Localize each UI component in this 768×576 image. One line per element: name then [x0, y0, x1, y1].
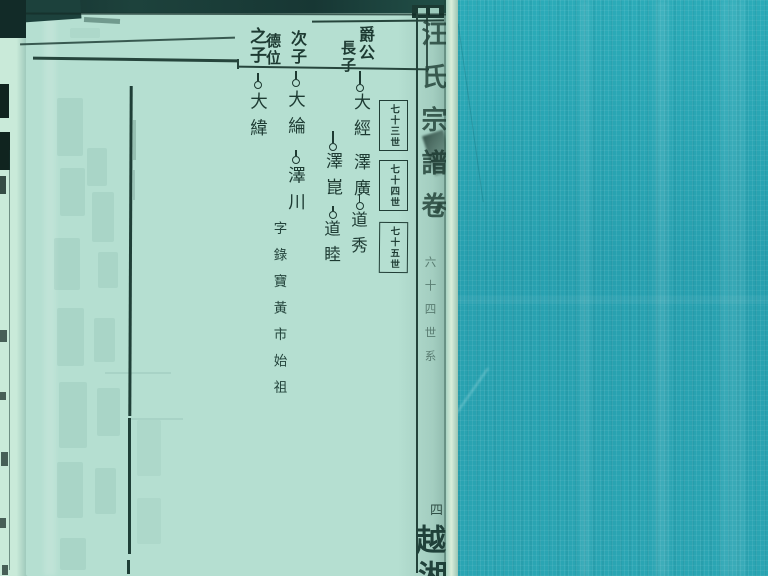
person-da-wei: 大緯 — [248, 92, 266, 145]
fabric-streak — [580, 0, 590, 576]
generation-box-73: 七十三世 — [379, 100, 408, 151]
descent-ring — [292, 79, 300, 87]
ghost-connector-line — [105, 372, 171, 374]
person-dao-xiu: 道秀 — [349, 211, 366, 262]
person-ze-chuan-note: 字錄寶黃市始祖 — [271, 221, 285, 407]
header-label-de-wei: 德位 — [265, 33, 280, 67]
fabric-background — [440, 0, 768, 576]
faint-marginal-marks — [133, 120, 136, 160]
underpage-border-line — [9, 150, 10, 570]
edge-mark — [1, 452, 8, 466]
fabric-streak — [655, 0, 669, 576]
cut-off-glyph-block — [0, 84, 9, 118]
ghost-text-block — [60, 168, 85, 216]
header-label-jue-gong: 爵公 — [357, 26, 373, 62]
descent-ring — [254, 81, 262, 89]
fabric-crease — [458, 18, 524, 202]
chart-vertical-line — [128, 418, 131, 554]
page-edge-line — [444, 0, 446, 576]
edge-mark — [0, 392, 6, 400]
person-da-jing: 大經 — [351, 93, 368, 145]
ghost-text-block — [92, 192, 114, 242]
descent-ring — [329, 143, 337, 151]
generation-box-75: 七十五世 — [379, 222, 408, 273]
descent-line — [332, 131, 334, 143]
page-crease-highlight — [44, 8, 56, 576]
edge-mark — [0, 518, 6, 528]
cut-off-glyph-block — [0, 176, 6, 194]
person-da-lun: 大綸 — [286, 90, 304, 143]
spine-vertical-rule — [416, 13, 418, 573]
ghost-text-block — [57, 308, 84, 366]
descent-line — [257, 73, 259, 81]
spine-small-text: 六十四世系 — [424, 256, 436, 374]
ghost-text-block — [87, 148, 107, 186]
generation-box-74: 七十四世 — [379, 160, 408, 211]
ghost-text-block — [137, 498, 161, 544]
generation-box-73-label: 七十三世 — [389, 104, 399, 148]
descent-line — [295, 71, 297, 79]
spine-bottom-mark: 四 — [428, 503, 441, 516]
person-ze-kun: 澤崑 — [323, 152, 340, 204]
ghost-text-block — [57, 462, 83, 518]
ghost-text-block — [59, 382, 87, 448]
chart-vertical-line-dash — [127, 560, 130, 574]
page-right-edge — [446, 0, 458, 576]
ghost-connector-line — [128, 418, 183, 420]
fabric-streak — [440, 296, 768, 304]
spine-bottom-char-cut: 湘 — [414, 560, 444, 576]
descent-ring — [292, 156, 300, 164]
ghost-text-block — [57, 98, 83, 156]
ghost-text-block — [137, 420, 161, 476]
descent-line — [359, 71, 361, 84]
spine-bottom-char-yue: 越 — [412, 524, 442, 554]
header-label-his-son: 之子 — [247, 27, 264, 65]
descent-ring — [356, 84, 364, 92]
ghost-text-block — [97, 388, 120, 436]
genealogy-page — [26, 8, 450, 576]
fabric-streak — [720, 0, 746, 576]
descent-line — [359, 195, 361, 202]
header-label-second-son: 次子 — [289, 30, 305, 66]
person-ze-chuan: 澤川 — [286, 166, 304, 219]
descent-ring — [329, 211, 337, 219]
photo-of-genealogy-book: 爵公 長子 次子 德位 之子 七十三世 七十四世 七十五世 大經 澤廣 道秀 澤… — [0, 0, 768, 576]
generation-box-74-label: 七十四世 — [389, 164, 399, 208]
ghost-text-block — [70, 28, 100, 38]
ghost-text-block — [95, 468, 116, 514]
edge-mark — [0, 330, 7, 342]
ghost-text-block — [94, 318, 115, 362]
ghost-text-block — [98, 252, 118, 288]
header-label-eldest-son: 長子 — [340, 40, 355, 74]
ghost-text-block — [60, 538, 86, 570]
background-shadow-band — [0, 0, 26, 38]
edge-mark — [2, 565, 8, 575]
faint-marginal-marks — [133, 170, 135, 200]
generation-box-75-label: 七十五世 — [389, 225, 399, 269]
ghost-text-block — [54, 238, 80, 290]
person-dao-mu: 道睦 — [322, 220, 339, 271]
descent-ring — [356, 202, 364, 210]
